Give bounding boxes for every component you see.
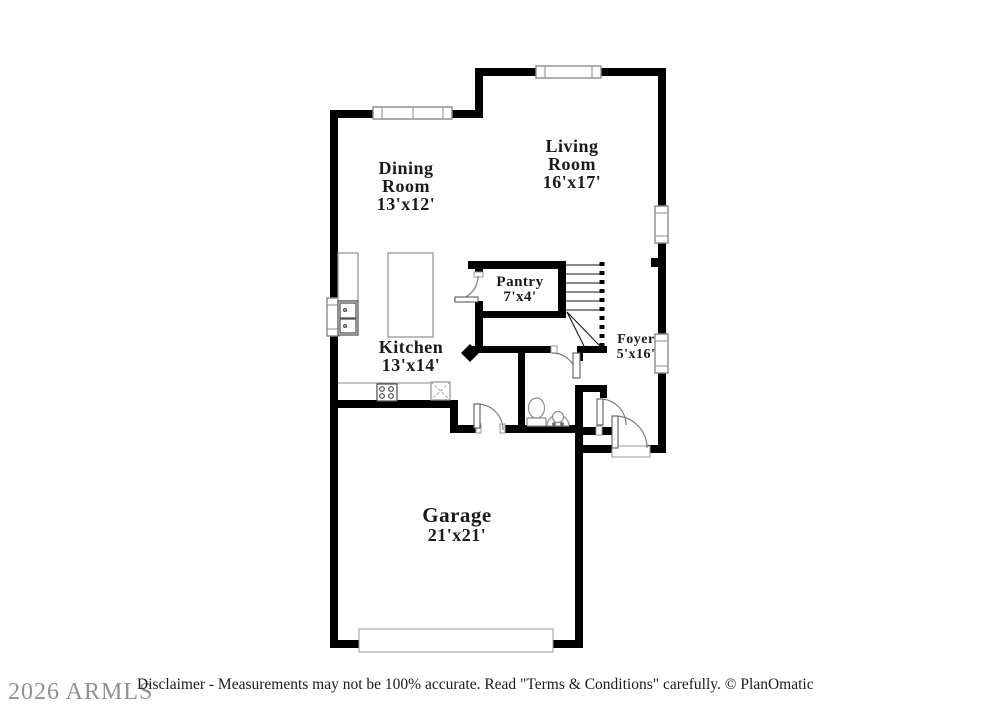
wall-garage-right <box>575 433 583 648</box>
wall-hall-bottom-left <box>450 425 477 433</box>
living-room-label: Living <box>545 136 598 156</box>
pantry-label: Pantry <box>496 274 543 290</box>
window-kitchen-left <box>327 298 339 336</box>
dining-room-dims: 13'x12' <box>377 194 436 214</box>
wall-stair-rail-stub <box>651 258 658 267</box>
window-dining-top <box>373 107 452 119</box>
garage-entry-door <box>474 404 505 433</box>
pantry-door <box>454 272 483 302</box>
stair-winder-line <box>567 312 584 346</box>
wall-right <box>658 68 666 453</box>
wall-stairs-bottom-right <box>577 346 607 353</box>
foyer-label: Foyer <box>617 332 654 347</box>
kitchen-dims: 13'x14' <box>382 355 441 375</box>
dining-room-label2: Room <box>382 176 430 196</box>
floor-plan-drawing: Dining Room 13'x12' Living Room 16'x17' … <box>0 0 1000 727</box>
bathroom-sink <box>547 412 569 427</box>
windows <box>327 66 668 373</box>
foyer-dims: 5'x16' <box>617 347 656 362</box>
garage-vehicle-door <box>359 629 553 652</box>
front-door <box>612 416 650 457</box>
floor-plan-page: Dining Room 13'x12' Living Room 16'x17' … <box>0 0 1000 727</box>
stove <box>377 384 397 401</box>
armls-watermark: 2026 ARMLS <box>8 679 153 706</box>
kitchen-counter-left <box>338 253 358 301</box>
window-foyer-right <box>655 334 668 373</box>
wall-pantry-bottom <box>475 311 566 318</box>
wall-foyer-bottom-left <box>583 445 615 453</box>
pantry-dims: 7'x4' <box>503 289 536 305</box>
wall-foyer-left <box>575 385 583 445</box>
dining-room-label: Dining <box>378 158 433 178</box>
wall-powder-left <box>518 346 525 433</box>
walls <box>330 68 666 648</box>
garage-label: Garage <box>422 503 491 527</box>
window-living-top <box>536 66 601 78</box>
stair-winder-line <box>567 312 600 346</box>
living-room-dims: 16'x17' <box>543 172 602 192</box>
kitchen-label: Kitchen <box>379 337 444 357</box>
kitchen-sink <box>338 301 358 335</box>
powder-room-fixtures <box>527 398 569 426</box>
appliance-space <box>431 382 450 400</box>
disclaimer-text: Disclaimer - Measurements may not be 100… <box>137 676 814 694</box>
window-living-right-upper <box>655 206 668 243</box>
staircase <box>565 262 602 351</box>
wall-closet-top-cap <box>600 385 607 398</box>
room-labels: Dining Room 13'x12' Living Room 16'x17' … <box>377 136 656 545</box>
kitchen-fixtures <box>338 253 450 401</box>
living-room-label2: Room <box>548 154 596 174</box>
kitchen-island <box>388 253 433 337</box>
garage-dims: 21'x21' <box>428 525 487 545</box>
wall-pantry-right <box>558 261 566 318</box>
wall-left <box>330 110 338 648</box>
wall-pantry-left-lower <box>475 301 483 353</box>
powder-room-door <box>551 346 580 378</box>
toilet <box>527 398 546 426</box>
wall-pantry-top <box>468 261 566 269</box>
